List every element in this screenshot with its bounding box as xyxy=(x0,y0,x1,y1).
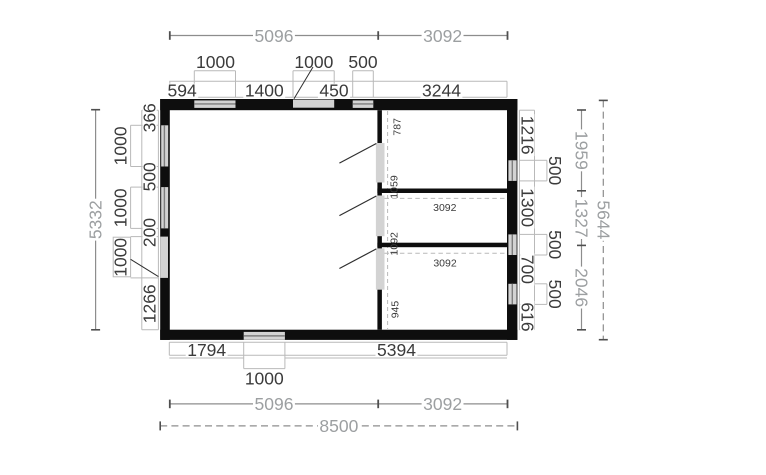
svg-text:2046: 2046 xyxy=(572,268,592,307)
svg-text:500: 500 xyxy=(545,156,565,185)
svg-text:1000: 1000 xyxy=(110,126,130,165)
svg-text:1327: 1327 xyxy=(572,199,592,238)
svg-text:1216: 1216 xyxy=(517,116,537,155)
svg-text:1000: 1000 xyxy=(110,238,130,277)
svg-text:3092: 3092 xyxy=(423,26,462,46)
svg-text:787: 787 xyxy=(391,118,403,136)
svg-text:5644: 5644 xyxy=(593,200,613,239)
svg-text:594: 594 xyxy=(167,81,196,101)
svg-text:1000: 1000 xyxy=(110,188,130,227)
svg-text:500: 500 xyxy=(348,52,377,72)
svg-text:1092: 1092 xyxy=(389,232,401,256)
svg-text:616: 616 xyxy=(517,302,537,331)
svg-text:3092: 3092 xyxy=(423,394,462,414)
svg-text:1959: 1959 xyxy=(572,131,592,170)
svg-text:5096: 5096 xyxy=(255,26,294,46)
svg-text:5096: 5096 xyxy=(255,394,294,414)
svg-text:500: 500 xyxy=(545,279,565,308)
svg-text:366: 366 xyxy=(140,103,160,132)
svg-text:450: 450 xyxy=(319,81,348,101)
svg-text:1266: 1266 xyxy=(140,284,160,323)
svg-text:3092: 3092 xyxy=(433,202,457,214)
svg-text:1300: 1300 xyxy=(517,188,537,227)
svg-text:1000: 1000 xyxy=(294,52,333,72)
svg-text:1000: 1000 xyxy=(245,369,284,389)
svg-text:700: 700 xyxy=(517,255,537,284)
svg-text:5394: 5394 xyxy=(377,340,416,360)
svg-text:5332: 5332 xyxy=(86,200,106,239)
svg-text:1059: 1059 xyxy=(389,175,401,199)
svg-text:500: 500 xyxy=(140,162,160,191)
svg-text:3244: 3244 xyxy=(422,81,461,101)
svg-text:500: 500 xyxy=(545,230,565,259)
svg-text:1400: 1400 xyxy=(245,81,284,101)
svg-text:8500: 8500 xyxy=(319,416,358,436)
svg-text:1000: 1000 xyxy=(196,52,235,72)
svg-text:945: 945 xyxy=(390,301,402,319)
svg-text:1794: 1794 xyxy=(187,340,226,360)
svg-text:3092: 3092 xyxy=(433,257,457,269)
svg-text:200: 200 xyxy=(140,218,160,247)
